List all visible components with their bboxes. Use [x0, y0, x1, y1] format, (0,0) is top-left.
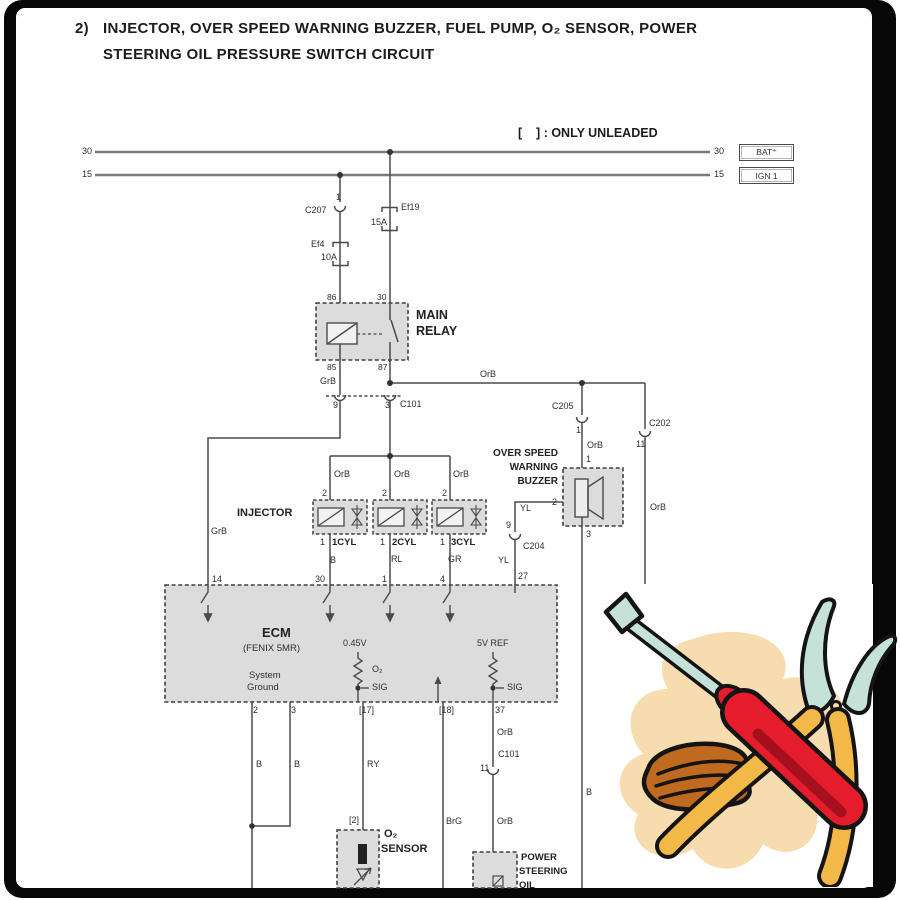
orb37b-label: OrB: [497, 816, 513, 826]
inj1-pin2-label: 2: [322, 488, 327, 498]
b-buzzer-wire-label: B: [586, 787, 592, 797]
battery-terminal-box: BAT⁺: [739, 144, 794, 161]
c204-pin-label: 9: [506, 520, 511, 530]
inj3-pin2-label: 2: [442, 488, 447, 498]
c101-pin3-label: 3: [385, 400, 390, 410]
battery-terminal-label: BAT⁺: [756, 147, 776, 158]
inj2-pin2-label: 2: [382, 488, 387, 498]
wiring-diagram-page: { "title": {"number": "2)", "line1": "IN…: [0, 0, 900, 900]
buzzer-box: [563, 468, 623, 526]
buzzer-title-line3: BUZZER: [440, 476, 558, 487]
orb2-label: OrB: [394, 469, 410, 479]
ps-name-line2: STEERING: [519, 866, 568, 877]
o2-sensor-name-line1: O₂: [384, 828, 397, 840]
relay-pin87-label: 87: [378, 363, 387, 372]
ecm-bpin37-label: 37: [495, 705, 505, 715]
c202-name-label: C202: [649, 418, 671, 428]
buzzer-title-line1: OVER SPEED: [440, 448, 558, 459]
buzzer-title-line2: WARNING: [440, 462, 558, 473]
b-wire2-label: B: [256, 759, 262, 769]
c205-name-label: C205: [552, 401, 574, 411]
rail15-left-label: 15: [82, 169, 92, 179]
ecm-sub-label: (FENIX 5MR): [243, 644, 300, 654]
injector-symbols: [313, 500, 486, 534]
ef19-rating-label: 15A: [371, 217, 387, 227]
ps-name-line1: POWER: [521, 852, 557, 863]
o2-sensor-pin-label: [2]: [349, 815, 359, 825]
rail30-left-label: 30: [82, 146, 92, 156]
c207-name-label: C207: [305, 205, 327, 215]
o2-sensor-name-line2: SENSOR: [381, 843, 427, 855]
sig-right-label: SIG: [507, 682, 523, 692]
rail15-right-label: 15: [714, 169, 724, 179]
ecm-pin4-label: 4: [440, 574, 445, 584]
rail30-right-label: 30: [714, 146, 724, 156]
inj2-pin1-label: 1: [380, 537, 385, 547]
5v-ref-label: 5V REF: [477, 638, 509, 648]
ef4-name-label: Ef4: [311, 239, 325, 249]
relay-name-line2: RELAY: [416, 324, 457, 338]
relay-pin30-label: 30: [377, 293, 386, 302]
inj1-pin1-label: 1: [320, 537, 325, 547]
c101m-name-label: C101: [498, 749, 520, 759]
c207-connector-icon: [335, 206, 346, 212]
relay-pin86-label: 86: [327, 293, 336, 302]
injector-label: INJECTOR: [237, 507, 292, 519]
inj3-name-label: 3CYL: [451, 537, 475, 548]
speaker-body-icon: [575, 479, 588, 517]
ef19-name-label: Ef19: [401, 202, 420, 212]
ecm-bpin3-label: 3: [291, 705, 296, 715]
sig-left-label: SIG: [372, 682, 388, 692]
ecm-pin1-label: 1: [382, 574, 387, 584]
grb-wire-path: [208, 401, 340, 585]
tools-clipart: [598, 584, 898, 887]
o2-sensor-symbol: [337, 830, 379, 888]
injector-2cyl-symbol: [373, 500, 427, 534]
ef4-rating-label: 10A: [321, 252, 337, 262]
c207-pin-label: 1: [336, 192, 341, 202]
relay-pin85-label: 85: [327, 363, 336, 372]
system-ground-line1: System: [249, 671, 281, 681]
relay-name-line1: MAIN: [416, 308, 448, 322]
buzzer-pin2-label: 2: [552, 497, 557, 507]
ignition-terminal-box: IGN 1: [739, 167, 794, 184]
tools-clipart-svg: [598, 584, 898, 887]
ecm-bpin2-label: 2: [253, 705, 258, 715]
injector-3cyl-symbol: [432, 500, 486, 534]
orb-main-label: OrB: [480, 369, 496, 379]
ps-switch-symbol: [473, 852, 517, 888]
junction-dots: [249, 149, 585, 829]
orb-37-wire: [488, 702, 499, 852]
orb-c205-label: OrB: [587, 440, 603, 450]
yl-wire-label: YL: [520, 503, 531, 513]
ecm-name-label: ECM: [262, 625, 291, 640]
ecm-pin30-label: 30: [315, 574, 325, 584]
v045-label: 0.45V: [343, 638, 367, 648]
inj1-wire-label: B: [330, 555, 336, 565]
grb-ecm-label: GrB: [211, 526, 227, 536]
c101-top-connector: [208, 395, 402, 585]
buzzer-pin3-label: 3: [586, 529, 591, 539]
ps-name-line3: OIL: [519, 880, 535, 891]
c101-name-label: C101: [400, 399, 422, 409]
orb-c202-label: OrB: [650, 502, 666, 512]
system-ground-line2: Ground: [247, 683, 279, 693]
ecm-bpin17-label: [17]: [359, 705, 374, 715]
b-wire3-label: B: [294, 759, 300, 769]
o2-element-icon: [358, 844, 367, 864]
ignition-terminal-label: IGN 1: [755, 171, 777, 181]
o2-internal-label: O₂: [372, 664, 383, 674]
injector-1cyl-symbol: [313, 500, 367, 534]
brg-wire-label: BrG: [446, 816, 462, 826]
orb37a-label: OrB: [497, 727, 513, 737]
c101m-pin-label: 11: [480, 763, 489, 773]
ry-wire-label: RY: [367, 759, 379, 769]
ecm-pin14-label: 14: [212, 574, 222, 584]
inj3-pin1-label: 1: [440, 537, 445, 547]
yl2-wire-label: YL: [498, 555, 509, 565]
c101-pin9-label: 9: [333, 400, 338, 410]
c204-name-label: C204: [523, 541, 545, 551]
inj3-wire-label: GR: [448, 554, 462, 564]
inj2-name-label: 2CYL: [392, 537, 416, 548]
orb1-label: OrB: [334, 469, 350, 479]
grb-wire-label: GrB: [320, 376, 336, 386]
buzzer-pin1-label: 1: [586, 454, 591, 464]
c202-pin-label: 11: [636, 439, 645, 449]
ecm-pin27-label: 27: [518, 571, 528, 581]
inj2-wire-label: RL: [391, 554, 403, 564]
power-rails: [95, 152, 710, 175]
c202-branch-wire: [640, 383, 651, 598]
ps-switch-box: [473, 852, 517, 888]
ecm-bpin18-label: [18]: [439, 705, 454, 715]
inj1-name-label: 1CYL: [332, 537, 356, 548]
c205-pin-label: 1: [576, 425, 581, 435]
